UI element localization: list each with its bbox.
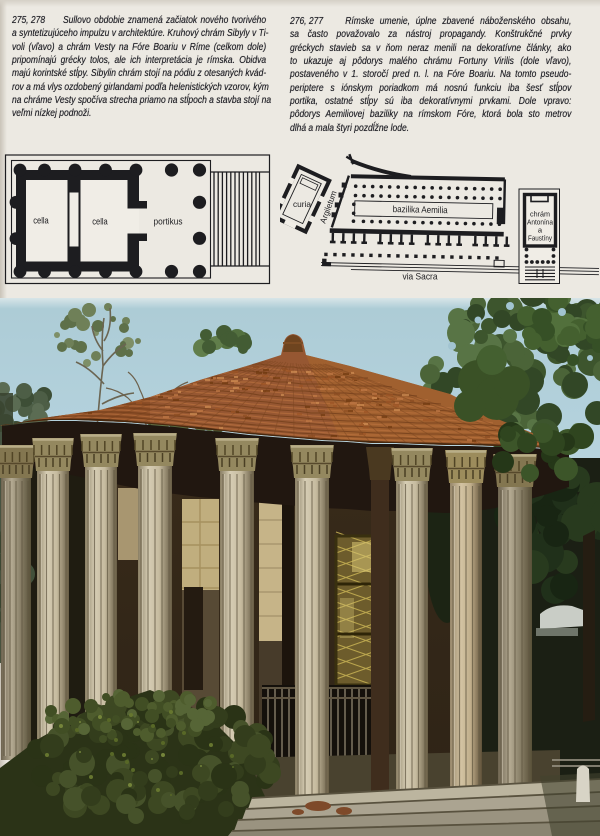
svg-text:bazilika Aemilia: bazilika Aemilia bbox=[393, 204, 449, 215]
svg-text:cella: cella bbox=[92, 217, 108, 227]
svg-text:cella: cella bbox=[33, 216, 49, 226]
svg-text:via Sacra: via Sacra bbox=[403, 272, 439, 282]
svg-text:curia: curia bbox=[293, 199, 311, 209]
svg-text:Faustíny: Faustíny bbox=[528, 234, 552, 243]
svg-text:portikus: portikus bbox=[154, 217, 183, 227]
